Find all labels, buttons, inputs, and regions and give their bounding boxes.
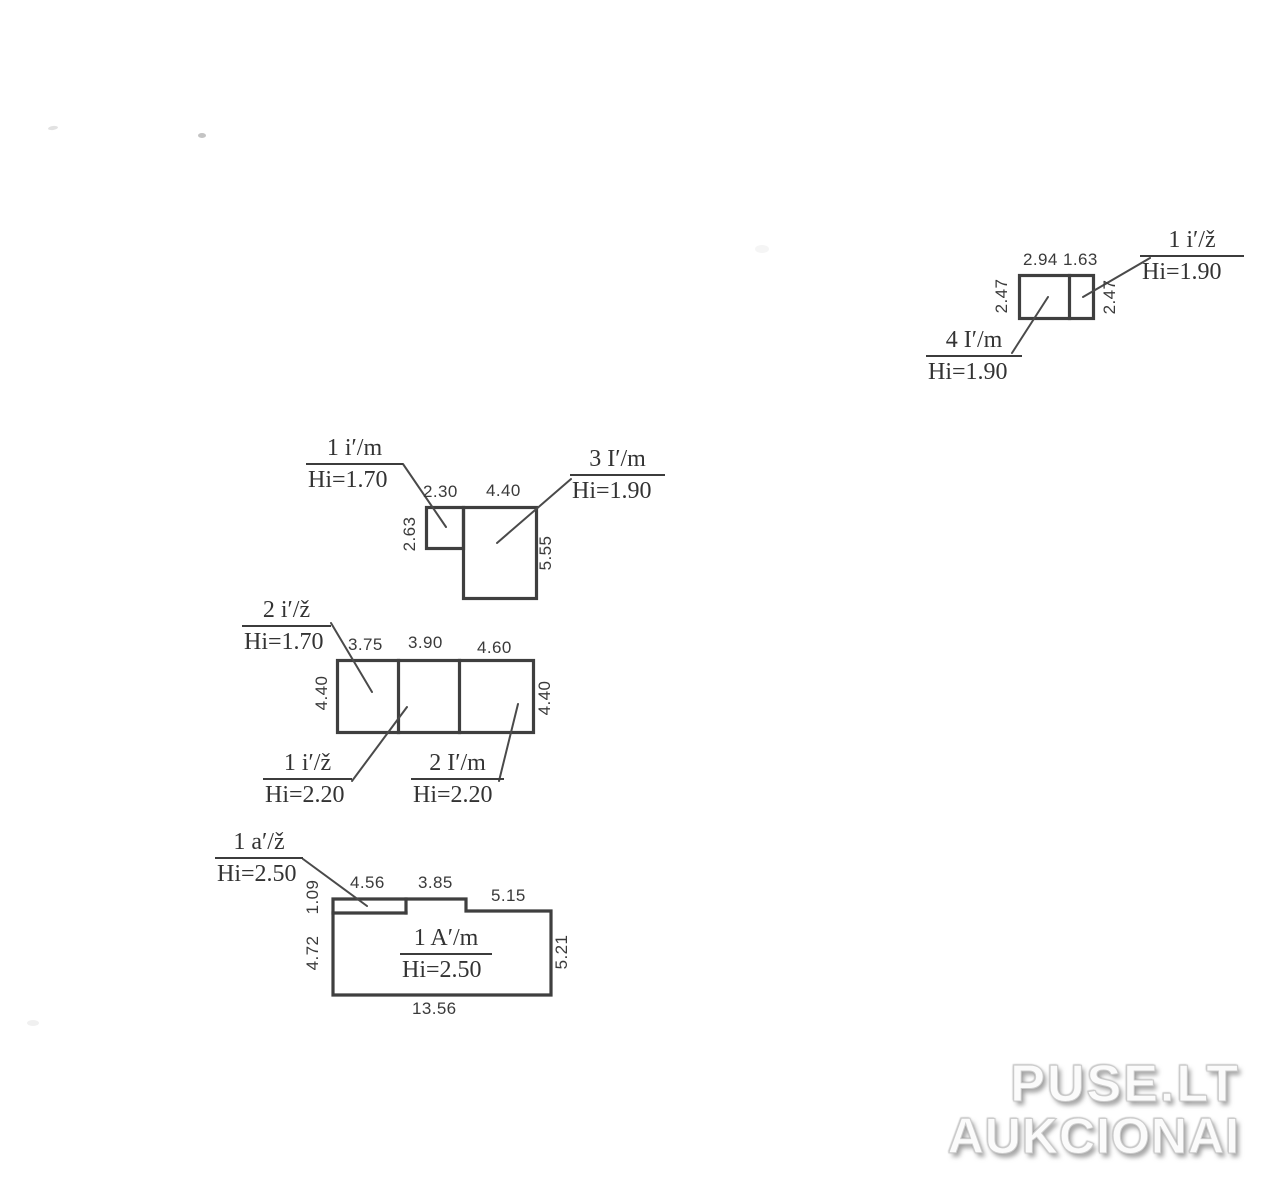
dim-unit3-top-large: 4.40 [486,481,521,501]
room-code: 3 I′/m [570,446,665,476]
room-height: Hi=1.70 [306,465,403,493]
unit2-label-bottom-right: 2 I′/m Hi=2.20 [411,750,504,809]
scan-artifact [27,1020,39,1026]
dim-unit2-right: 4.40 [535,668,555,728]
dim-unit1-left-lower: 4.72 [303,923,323,983]
room-code: 2 I′/m [411,750,504,780]
room-height: Hi=1.90 [926,357,1022,385]
unit3-label-left: 1 i′/m Hi=1.70 [306,435,403,494]
room-code: 2 i′/ž [242,597,331,627]
room-height: Hi=2.20 [263,780,352,808]
room-code: 1 i′/ž [263,750,352,780]
room-code: 1 i′/ž [1140,227,1244,257]
dim-unit2-top-3: 4.60 [477,638,512,658]
unit2-label-bottom-left: 1 i′/ž Hi=2.20 [263,750,352,809]
room-code: 1 A′/m [400,925,492,955]
unit3-label-right: 3 I′/m Hi=1.90 [570,446,665,505]
room-code: 1 i′/m [306,435,403,465]
unit3-small-room-outline [427,508,464,549]
unit1-label-top: 1 a′/ž Hi=2.50 [215,829,303,888]
plan-linework [0,0,1280,1185]
scan-artifact [198,133,206,138]
room-height: Hi=2.20 [411,780,504,808]
dim-unit1-top-1: 4.56 [350,873,385,893]
dim-unit4-top-right: 1.63 [1063,250,1098,270]
dim-unit1-right: 5.21 [552,922,572,982]
room-code: 1 a′/ž [215,829,303,859]
unit2-outline [338,661,534,733]
unit4-label-upper: 1 i′/ž Hi=1.90 [1140,227,1244,286]
dim-unit1-left-upper: 1.09 [303,867,323,927]
watermark: PUSE.LT AUKCIONAI [948,1058,1240,1162]
unit4-label-lower: 4 I′/m Hi=1.90 [926,327,1022,386]
dim-unit2-left: 4.40 [312,663,332,723]
unit3-large-room-outline [464,508,537,599]
scan-artifact [755,245,769,253]
room-height: Hi=1.90 [570,476,665,504]
dim-unit1-top-2: 3.85 [418,873,453,893]
unit1-label-inside: 1 A′/m Hi=2.50 [400,925,492,984]
dim-unit2-top-1: 3.75 [348,635,383,655]
watermark-line1: PUSE.LT [948,1058,1240,1110]
scanned-floor-plan-page: 1 i′/ž Hi=1.90 4 I′/m Hi=1.90 1 i′/m Hi=… [0,0,1280,1185]
unit2-leader-bottom-left [352,707,407,781]
watermark-line2: AUKCIONAI [948,1110,1240,1162]
dim-unit1-top-3: 5.15 [491,886,526,906]
room-height: Hi=1.70 [242,627,331,655]
room-code: 4 I′/m [926,327,1022,357]
dim-unit4-left: 2.47 [992,266,1012,326]
dim-unit3-right: 5.55 [536,523,556,583]
dim-unit1-bottom: 13.56 [412,999,457,1019]
dim-unit4-top-left: 2.94 [1023,250,1058,270]
room-height: Hi=2.50 [400,955,492,983]
room-height: Hi=2.50 [215,859,303,887]
unit2-label-top: 2 i′/ž Hi=1.70 [242,597,331,656]
room-height: Hi=1.90 [1140,257,1244,285]
dim-unit4-right: 2.47 [1100,267,1120,327]
dim-unit2-top-2: 3.90 [408,633,443,653]
dim-unit3-left: 2.63 [400,504,420,564]
dim-unit3-top-small: 2.30 [423,482,458,502]
